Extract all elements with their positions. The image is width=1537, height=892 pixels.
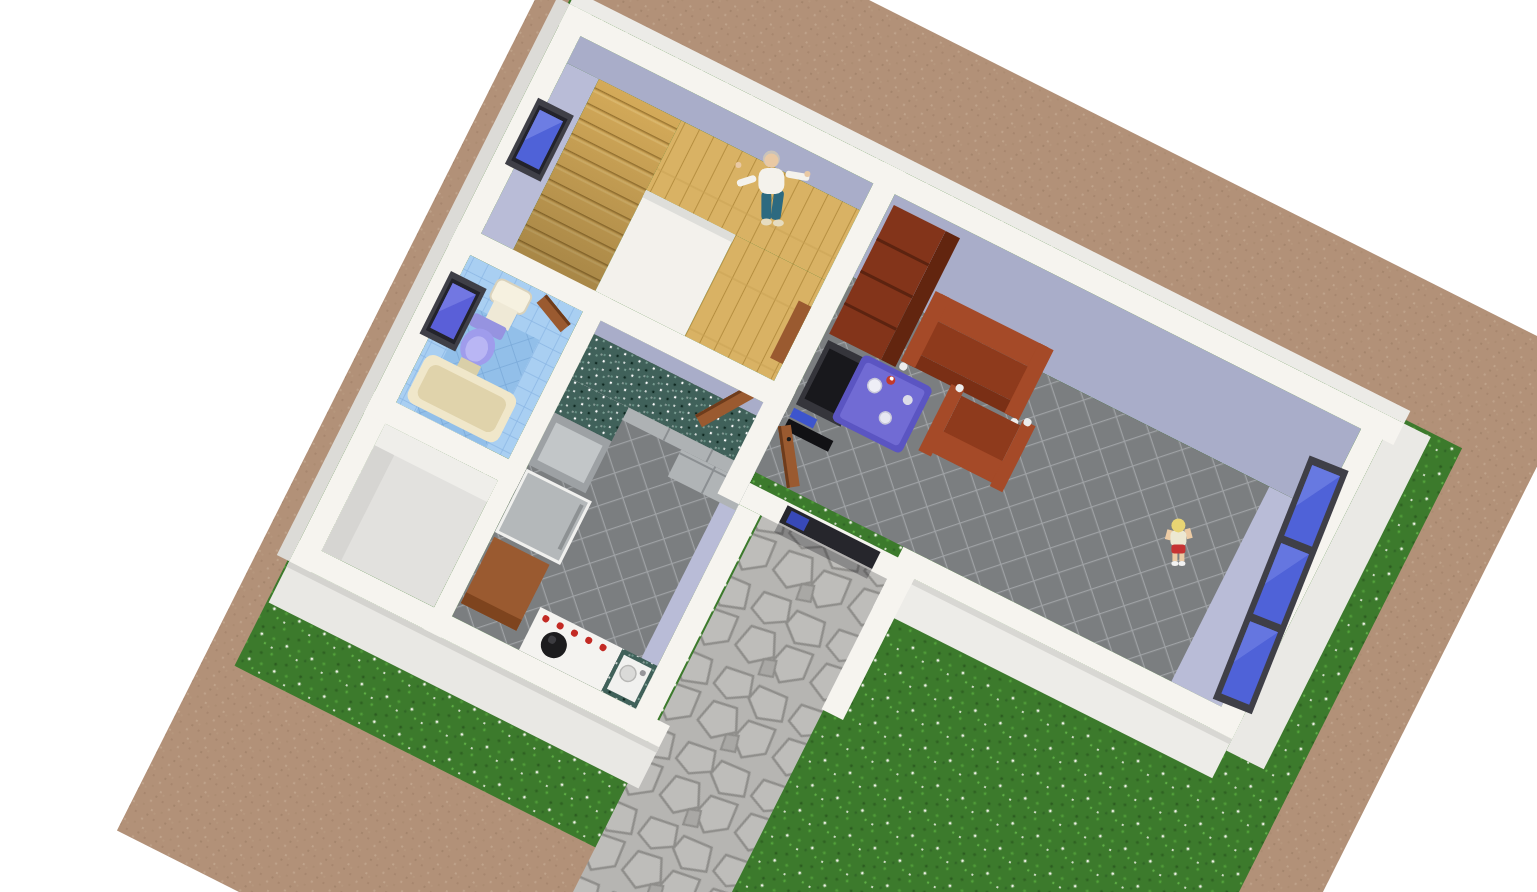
man-shoe	[761, 218, 772, 225]
man-hand	[735, 162, 741, 168]
man-hand	[804, 171, 810, 177]
man-head	[764, 153, 778, 167]
man-leg-left	[761, 192, 771, 220]
child-leg	[1172, 552, 1177, 561]
child-shoe	[1178, 561, 1185, 566]
child-shorts	[1171, 544, 1185, 553]
child-shoe	[1171, 561, 1178, 566]
child-leg	[1179, 552, 1184, 561]
3d-view-canvas[interactable]	[0, 0, 1537, 892]
child-torso	[1170, 530, 1186, 546]
home-3d-scene[interactable]	[0, 0, 1537, 892]
man-torso	[758, 168, 784, 194]
man-shoe	[773, 219, 784, 226]
child-head-hair	[1171, 518, 1185, 532]
